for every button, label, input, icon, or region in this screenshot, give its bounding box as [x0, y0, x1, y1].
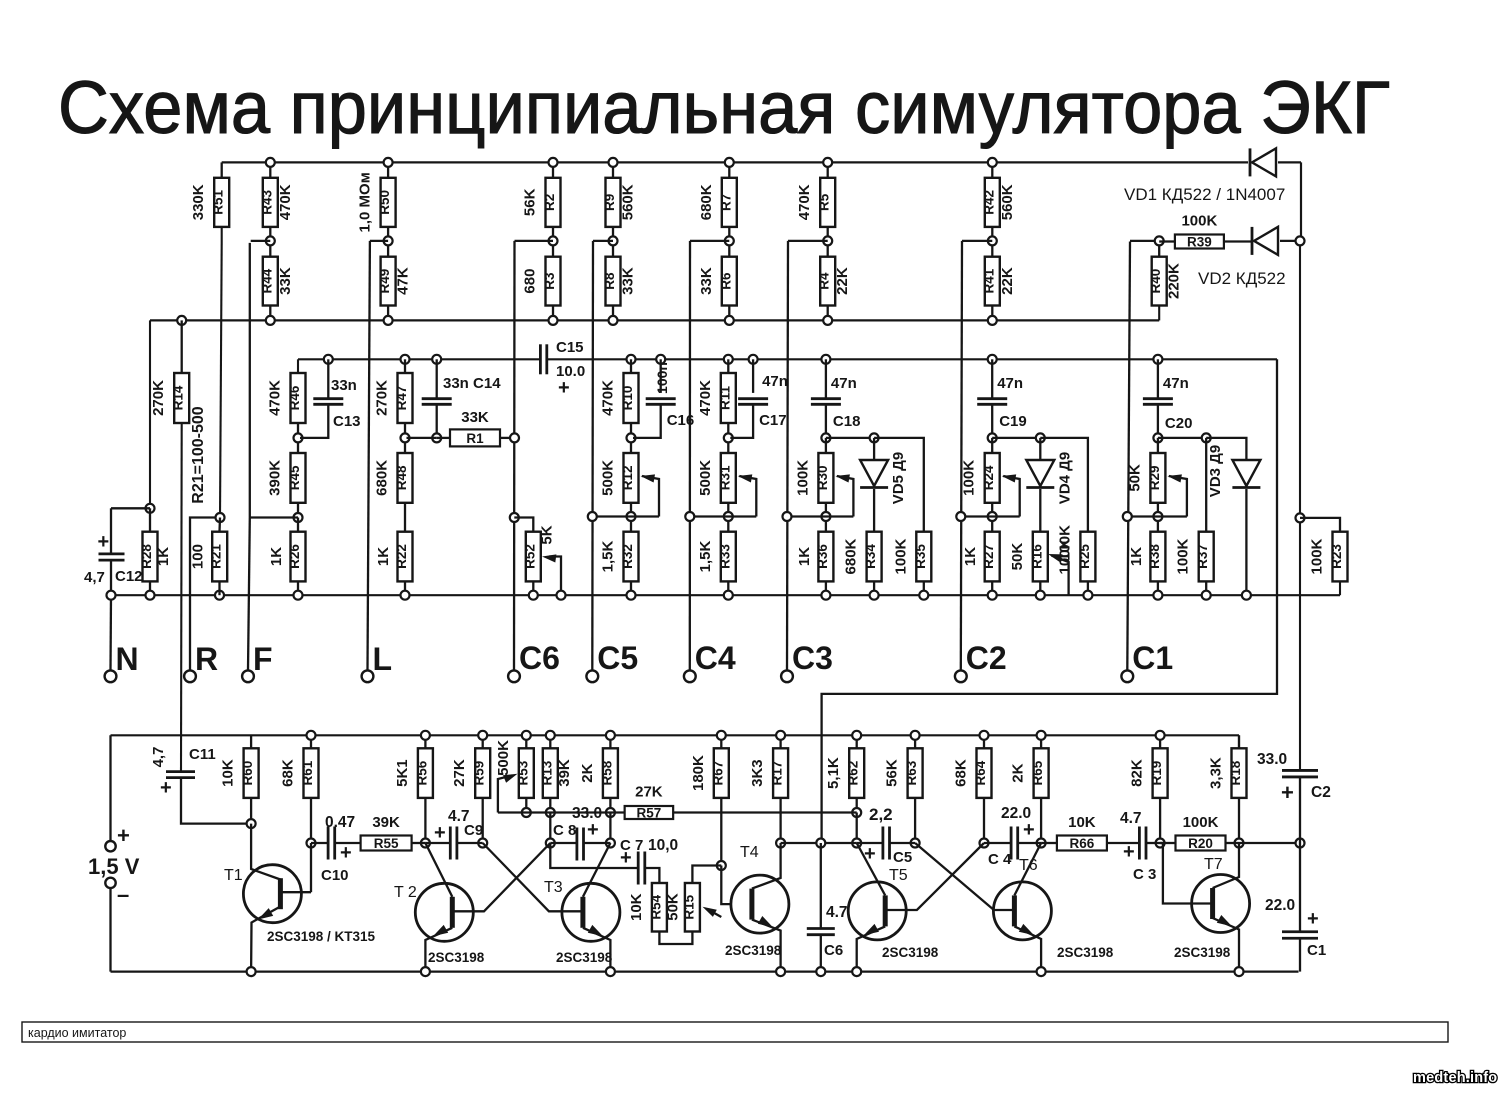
svg-text:R42: R42	[981, 190, 996, 215]
svg-text:4.7: 4.7	[826, 904, 848, 921]
svg-text:R18: R18	[1228, 760, 1243, 785]
svg-text:10,0: 10,0	[648, 837, 678, 854]
svg-text:33K: 33K	[277, 267, 294, 295]
svg-text:R29: R29	[1147, 466, 1162, 491]
svg-text:680: 680	[522, 269, 539, 294]
svg-text:C5: C5	[893, 849, 912, 866]
svg-text:+: +	[117, 823, 130, 848]
svg-text:2SC3198: 2SC3198	[556, 950, 613, 965]
svg-text:C17: C17	[759, 412, 787, 429]
svg-text:R1: R1	[466, 431, 484, 446]
svg-text:C13: C13	[333, 413, 361, 430]
svg-text:R52: R52	[522, 544, 537, 569]
svg-text:1K: 1K	[962, 547, 979, 566]
svg-text:R22: R22	[394, 544, 409, 569]
svg-text:R4: R4	[817, 272, 832, 290]
svg-text:кардио имитатор: кардио имитатор	[28, 1026, 126, 1040]
svg-text:2SC3198: 2SC3198	[1057, 945, 1114, 960]
svg-text:R59: R59	[472, 761, 487, 786]
svg-text:5K: 5K	[539, 525, 556, 544]
svg-text:R21: R21	[209, 544, 224, 569]
svg-text:R37: R37	[1195, 544, 1210, 569]
svg-text:T3: T3	[544, 879, 563, 896]
svg-text:22.0: 22.0	[1265, 897, 1295, 914]
svg-text:82K: 82K	[1129, 759, 1146, 787]
svg-text:T4: T4	[740, 844, 759, 861]
svg-text:C4: C4	[695, 640, 736, 676]
svg-text:–: –	[117, 882, 129, 907]
svg-text:R30: R30	[815, 466, 830, 491]
svg-text:2SC3198: 2SC3198	[1174, 945, 1231, 960]
svg-text:33n: 33n	[331, 377, 357, 394]
svg-text:+: +	[340, 842, 352, 864]
svg-text:C20: C20	[1165, 415, 1193, 432]
svg-text:VD1 КД522 / 1N4007: VD1 КД522 / 1N4007	[1124, 185, 1285, 204]
svg-text:+: +	[1023, 819, 1035, 841]
svg-text:R38: R38	[1147, 544, 1162, 569]
svg-text:C2: C2	[966, 640, 1007, 676]
svg-text:270K: 270K	[374, 380, 391, 416]
svg-text:C6: C6	[519, 640, 560, 676]
svg-text:500K: 500K	[495, 740, 512, 776]
svg-text:C10: C10	[321, 867, 349, 884]
svg-text:2SC3198: 2SC3198	[428, 950, 485, 965]
svg-text:C3: C3	[792, 640, 833, 676]
svg-text:R41: R41	[981, 268, 996, 293]
svg-text:330K: 330K	[190, 184, 207, 220]
svg-text:R49: R49	[377, 269, 392, 294]
svg-text:VD2 КД522: VD2 КД522	[1198, 269, 1286, 288]
svg-text:500K: 500K	[600, 460, 617, 496]
svg-text:R50: R50	[377, 190, 392, 215]
svg-text:33K: 33K	[698, 267, 715, 295]
svg-text:680K: 680K	[843, 538, 860, 574]
svg-text:1,0 МОм: 1,0 МОм	[357, 172, 374, 232]
svg-text:R46: R46	[287, 385, 302, 410]
svg-text:100K: 100K	[1309, 538, 1326, 574]
svg-text:+: +	[1123, 841, 1135, 863]
svg-text:R64: R64	[973, 760, 988, 785]
svg-text:R19: R19	[1149, 761, 1164, 786]
svg-text:R23: R23	[1329, 544, 1344, 569]
svg-text:560K: 560K	[999, 184, 1016, 220]
svg-text:R35: R35	[913, 544, 928, 569]
svg-text:47n: 47n	[997, 375, 1023, 392]
svg-text:R28: R28	[139, 544, 154, 569]
svg-text:5,1K: 5,1K	[825, 757, 842, 789]
svg-text:4,7: 4,7	[150, 747, 167, 768]
svg-text:C2: C2	[1311, 784, 1331, 801]
svg-text:470K: 470K	[600, 380, 617, 416]
svg-text:C1: C1	[1307, 942, 1326, 959]
svg-text:R26: R26	[287, 544, 302, 569]
svg-text:R2: R2	[542, 194, 557, 211]
svg-text:R48: R48	[394, 465, 409, 490]
svg-text:R36: R36	[815, 544, 830, 569]
svg-text:R24: R24	[981, 465, 996, 490]
svg-text:100: 100	[190, 544, 207, 569]
svg-text:2K: 2K	[579, 763, 596, 782]
svg-text:2SC3198 / KT315: 2SC3198 / KT315	[267, 929, 376, 944]
svg-text:C1: C1	[1132, 640, 1173, 676]
svg-text:39K: 39K	[372, 814, 400, 831]
svg-text:1K: 1K	[155, 547, 172, 566]
svg-text:+: +	[98, 531, 110, 553]
svg-text:R9: R9	[602, 194, 617, 211]
svg-text:R39: R39	[1187, 235, 1212, 250]
svg-text:R27: R27	[981, 544, 996, 569]
svg-text:100K: 100K	[794, 460, 811, 496]
svg-text:R67: R67	[710, 761, 725, 786]
svg-text:C 3: C 3	[1133, 866, 1156, 883]
svg-text:470K: 470K	[697, 380, 714, 416]
svg-text:medteh.info: medteh.info	[1413, 1070, 1497, 1086]
svg-text:R25: R25	[1077, 544, 1092, 569]
svg-text:C6: C6	[824, 942, 843, 959]
svg-text:R55: R55	[374, 836, 399, 851]
svg-text:R: R	[195, 641, 218, 677]
svg-text:C 8: C 8	[553, 822, 576, 839]
svg-text:470K: 470K	[277, 184, 294, 220]
svg-text:R33: R33	[717, 544, 732, 569]
svg-text:47K: 47K	[395, 267, 412, 295]
svg-text:R17: R17	[770, 761, 785, 786]
svg-text:R63: R63	[904, 760, 919, 785]
svg-text:R65: R65	[1030, 760, 1045, 785]
svg-text:1,5 V: 1,5 V	[88, 854, 140, 879]
svg-text:680K: 680K	[698, 184, 715, 220]
svg-text:R14: R14	[171, 385, 186, 410]
svg-text:10K: 10K	[220, 759, 237, 787]
svg-text:R62: R62	[846, 761, 861, 786]
svg-text:+: +	[1281, 780, 1294, 805]
svg-text:R20: R20	[1188, 836, 1213, 851]
svg-text:500K: 500K	[697, 460, 714, 496]
svg-text:R21=100-500: R21=100-500	[190, 406, 207, 504]
svg-text:22K: 22K	[999, 267, 1016, 295]
svg-text:50K: 50K	[665, 893, 682, 921]
svg-text:T7: T7	[1204, 856, 1223, 873]
svg-text:C12: C12	[115, 568, 143, 585]
svg-text:R66: R66	[1070, 836, 1095, 851]
svg-text:R47: R47	[394, 386, 409, 411]
svg-text:560K: 560K	[620, 184, 637, 220]
svg-text:1K: 1K	[375, 547, 392, 566]
svg-text:1K: 1K	[1128, 547, 1145, 566]
svg-text:2K: 2K	[1010, 763, 1027, 782]
svg-text:R61: R61	[300, 760, 315, 785]
svg-text:VD4 Д9: VD4 Д9	[1056, 452, 1073, 504]
svg-text:56K: 56K	[522, 188, 539, 216]
svg-text:+: +	[160, 777, 172, 799]
svg-text:R58: R58	[599, 760, 614, 785]
svg-text:C5: C5	[597, 640, 638, 676]
svg-text:R32: R32	[620, 544, 635, 569]
svg-text:3,3K: 3,3K	[1208, 757, 1225, 789]
svg-text:T1: T1	[224, 867, 243, 884]
svg-text:C 4: C 4	[988, 851, 1012, 868]
svg-text:33K: 33K	[620, 267, 637, 295]
svg-text:39K: 39K	[556, 759, 573, 787]
svg-text:4.7: 4.7	[1120, 810, 1142, 827]
svg-text:100K: 100K	[961, 460, 978, 496]
svg-text:T5: T5	[889, 867, 908, 884]
svg-text:470K: 470K	[267, 380, 284, 416]
svg-text:R45: R45	[287, 465, 302, 490]
svg-text:220K: 220K	[1166, 263, 1183, 299]
svg-text:R15: R15	[681, 894, 696, 919]
svg-text:27K: 27K	[451, 759, 468, 787]
svg-text:47n: 47n	[762, 373, 788, 390]
svg-text:R11: R11	[717, 386, 732, 411]
svg-text:56K: 56K	[884, 759, 901, 787]
svg-text:R7: R7	[718, 194, 733, 211]
svg-text:L: L	[373, 641, 393, 677]
svg-text:100K: 100K	[1183, 814, 1219, 831]
svg-text:10K: 10K	[1068, 814, 1096, 831]
svg-text:R53: R53	[515, 760, 530, 785]
svg-text:680K: 680K	[374, 460, 391, 496]
svg-text:R44: R44	[259, 268, 274, 293]
svg-text:F: F	[253, 641, 273, 677]
svg-text:50K: 50K	[1126, 464, 1143, 492]
svg-text:47n: 47n	[831, 375, 857, 392]
svg-text:27K: 27K	[635, 784, 663, 801]
svg-text:R57: R57	[637, 806, 662, 821]
svg-text:C18: C18	[833, 413, 861, 430]
svg-text:R34: R34	[863, 544, 878, 569]
svg-text:390K: 390K	[267, 460, 284, 496]
svg-text:3K3: 3K3	[749, 759, 766, 787]
svg-text:R6: R6	[718, 272, 733, 290]
svg-text:+: +	[620, 847, 632, 869]
svg-text:VD5 Д9: VD5 Д9	[890, 452, 907, 504]
svg-text:10K: 10K	[628, 893, 645, 921]
svg-text:R3: R3	[542, 272, 557, 290]
svg-text:180K: 180K	[690, 755, 707, 791]
svg-text:+: +	[1307, 908, 1319, 930]
svg-text:100K: 100K	[1181, 213, 1217, 230]
svg-text:1,5K: 1,5K	[600, 541, 617, 573]
svg-text:R31: R31	[717, 465, 732, 490]
svg-text:33K: 33K	[461, 409, 489, 426]
svg-text:C9: C9	[464, 822, 483, 839]
svg-text:33n C14: 33n C14	[443, 375, 501, 392]
svg-text:VD3 Д9: VD3 Д9	[1207, 445, 1224, 497]
svg-text:68K: 68K	[280, 759, 297, 787]
svg-text:0.47: 0.47	[325, 814, 355, 831]
svg-text:47n: 47n	[1163, 375, 1189, 392]
svg-text:+: +	[587, 819, 599, 841]
svg-text:2SC3198: 2SC3198	[725, 943, 782, 958]
svg-text:C19: C19	[999, 413, 1027, 430]
svg-text:C11: C11	[189, 746, 216, 763]
svg-text:R40: R40	[1148, 269, 1163, 294]
svg-text:100K: 100K	[892, 538, 909, 574]
svg-text:2,2: 2,2	[869, 805, 893, 824]
svg-text:100K: 100K	[1175, 538, 1192, 574]
svg-text:+: +	[434, 822, 446, 844]
svg-text:33.0: 33.0	[1257, 751, 1287, 768]
svg-text:R12: R12	[620, 466, 635, 491]
svg-text:470K: 470K	[796, 184, 813, 220]
svg-text:4,7: 4,7	[84, 569, 105, 586]
svg-text:270K: 270K	[150, 380, 167, 416]
svg-text:R60: R60	[240, 761, 255, 786]
svg-text:C16: C16	[667, 412, 695, 429]
svg-text:R5: R5	[817, 193, 832, 211]
svg-text:C15: C15	[556, 339, 584, 356]
svg-text:5K1: 5K1	[394, 759, 411, 787]
svg-text:N: N	[116, 641, 139, 677]
svg-text:T 2: T 2	[394, 884, 417, 901]
svg-text:Схема принципиальная симулятор: Схема принципиальная симулятора ЭКГ	[58, 66, 1390, 149]
svg-text:R54: R54	[648, 894, 663, 919]
svg-text:R56: R56	[414, 760, 429, 785]
svg-text:+: +	[558, 377, 570, 399]
svg-text:R13: R13	[539, 760, 554, 785]
svg-text:100n: 100n	[654, 362, 670, 394]
svg-text:R43: R43	[259, 189, 274, 214]
svg-text:1,5K: 1,5K	[697, 541, 714, 573]
svg-text:R10: R10	[620, 386, 635, 411]
svg-text:R51: R51	[211, 189, 226, 214]
svg-text:R8: R8	[602, 272, 617, 290]
svg-text:1K: 1K	[268, 547, 285, 566]
svg-text:50K: 50K	[1009, 543, 1026, 571]
svg-text:R16: R16	[1029, 544, 1044, 569]
svg-text:1K: 1K	[796, 547, 813, 566]
svg-text:2SC3198: 2SC3198	[882, 945, 939, 960]
svg-text:22K: 22K	[834, 267, 851, 295]
svg-text:68K: 68K	[953, 759, 970, 787]
